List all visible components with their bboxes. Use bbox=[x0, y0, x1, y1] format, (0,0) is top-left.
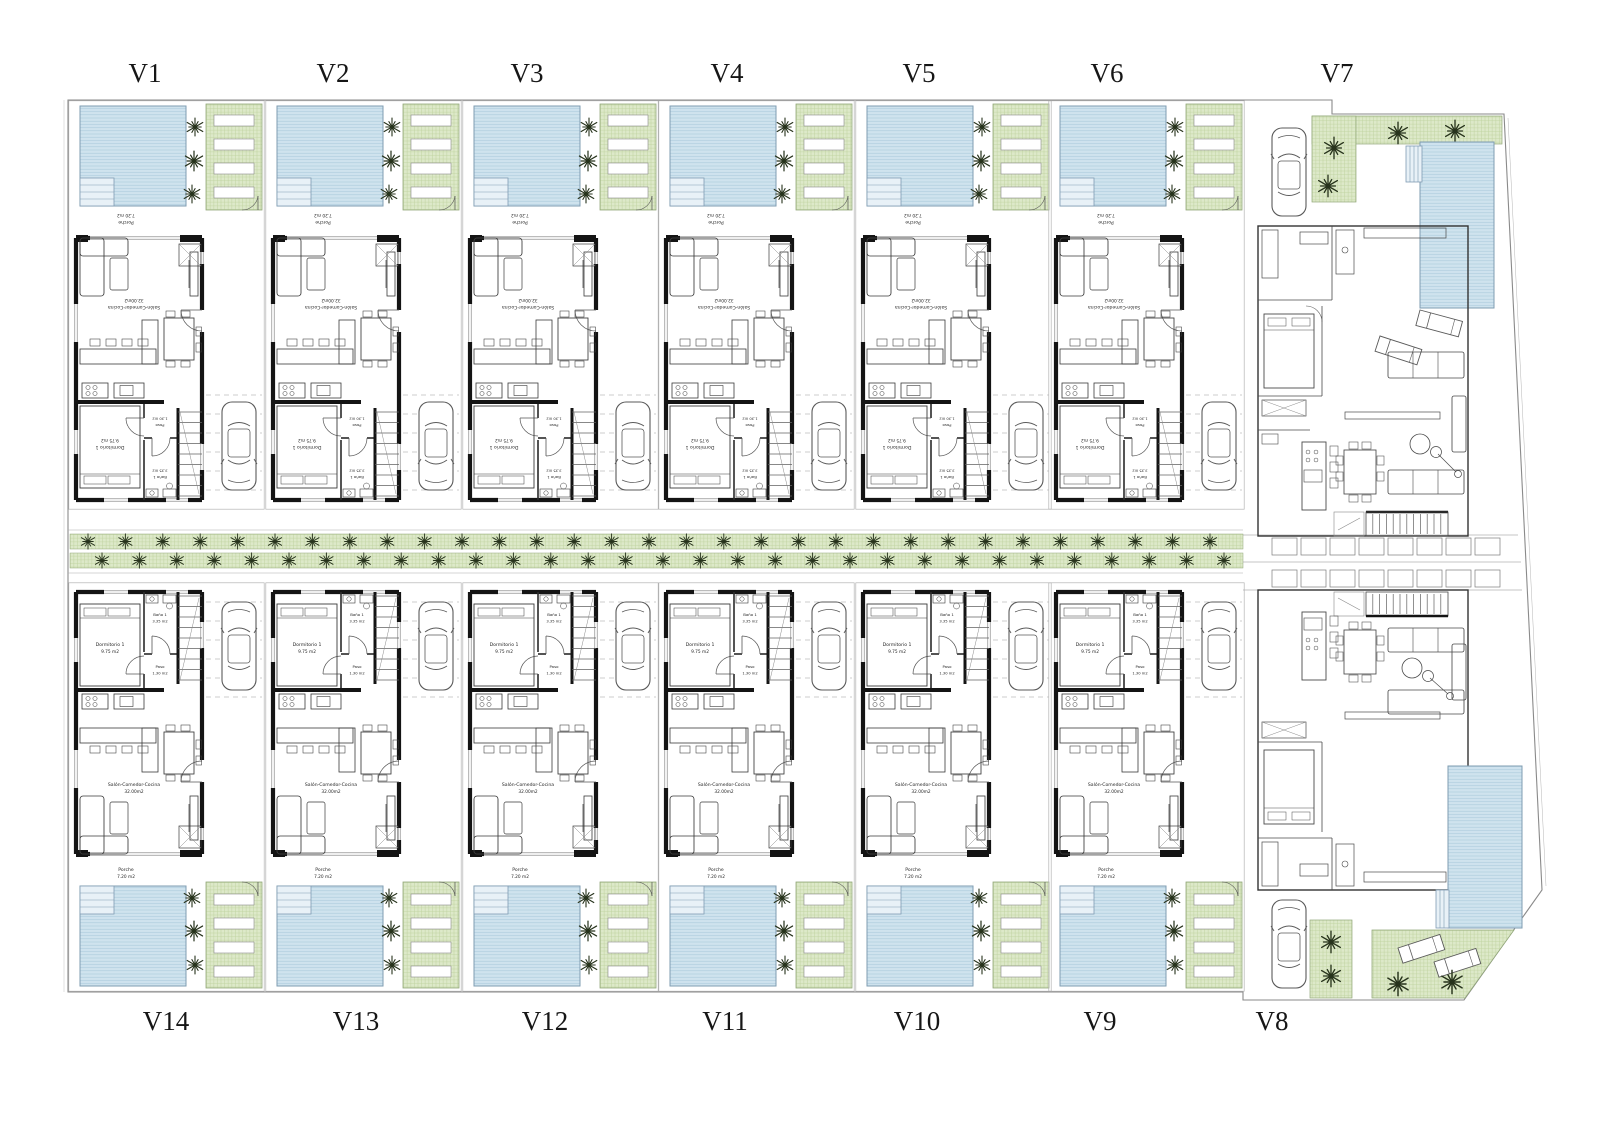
label-bano: Baño 1 bbox=[350, 475, 364, 480]
label-salon: Salón-Comedor-Cocina bbox=[108, 781, 160, 788]
label-paso: Paso bbox=[155, 423, 165, 428]
porch-post bbox=[770, 850, 792, 857]
label-porche: Porche bbox=[708, 867, 724, 873]
unit-number-label: V14 bbox=[143, 1006, 190, 1036]
porch-post bbox=[377, 850, 399, 857]
parked-car bbox=[1201, 402, 1237, 490]
label-dormitorio-area: 9.75 m2 bbox=[495, 437, 513, 443]
label-salon: Salón-Comedor-Cocina bbox=[502, 304, 554, 311]
label-salon: Salón-Comedor-Cocina bbox=[305, 304, 357, 311]
unit-number-label: V4 bbox=[711, 58, 744, 88]
label-porche-area: 7.20 m2 bbox=[117, 212, 135, 218]
garden-slat bbox=[1001, 894, 1041, 905]
garden-slat bbox=[411, 918, 451, 929]
garden-slat bbox=[214, 115, 254, 126]
label-dormitorio-area: 9.75 m2 bbox=[298, 649, 316, 655]
label-salon-area: 32.00m2 bbox=[124, 789, 143, 795]
label-bano-area: 3.35 m2 bbox=[1132, 620, 1147, 624]
parked-car bbox=[615, 402, 651, 490]
garden-slat bbox=[1194, 966, 1234, 977]
parked-car bbox=[1008, 602, 1044, 690]
parked-car bbox=[1271, 128, 1307, 216]
garden-slat bbox=[411, 894, 451, 905]
label-paso: Paso bbox=[942, 423, 952, 428]
label-paso: Paso bbox=[352, 423, 362, 428]
garden-slat bbox=[1194, 894, 1234, 905]
garden-slat bbox=[214, 942, 254, 953]
unit-number-label: V11 bbox=[702, 1006, 748, 1036]
garden-slat bbox=[1001, 966, 1041, 977]
garden-slat bbox=[1001, 139, 1041, 150]
garden-slat bbox=[804, 894, 844, 905]
parked-car bbox=[1008, 402, 1044, 490]
label-paso-area: 1.30 m2 bbox=[546, 672, 561, 676]
garden-slat bbox=[804, 163, 844, 174]
garden-slat bbox=[1001, 115, 1041, 126]
garden-slat bbox=[608, 894, 648, 905]
label-dormitorio-area: 9.75 m2 bbox=[298, 437, 316, 443]
garden-slat bbox=[411, 115, 451, 126]
label-salon-area: 32.00m2 bbox=[714, 297, 733, 303]
label-paso: Paso bbox=[745, 423, 755, 428]
label-bano: Baño 1 bbox=[547, 475, 561, 480]
porch-post bbox=[967, 235, 989, 242]
parked-car bbox=[221, 602, 257, 690]
label-porche-area: 7.20 m2 bbox=[511, 874, 529, 880]
label-bano-area: 3.35 m2 bbox=[152, 620, 167, 624]
label-bano: Baño 1 bbox=[153, 612, 167, 617]
label-dormitorio: Dormitorio 1 bbox=[292, 444, 321, 450]
garden-slat bbox=[1194, 918, 1234, 929]
swimming-pool bbox=[1448, 766, 1522, 928]
floor-plan-page: Dormitorio 19.75 m2Baño 13.35 m2Paso1.30… bbox=[0, 0, 1600, 1131]
label-porche-area: 7.20 m2 bbox=[314, 874, 332, 880]
label-paso-area: 1.30 m2 bbox=[546, 417, 561, 421]
label-paso-area: 1.30 m2 bbox=[742, 672, 757, 676]
unit-number-label: V13 bbox=[333, 1006, 380, 1036]
label-dormitorio-area: 9.75 m2 bbox=[691, 437, 709, 443]
garden-slat bbox=[411, 139, 451, 150]
garden-slat bbox=[411, 163, 451, 174]
label-paso: Paso bbox=[1136, 664, 1146, 669]
label-dormitorio: Dormitorio 1 bbox=[95, 444, 124, 450]
label-porche: Porche bbox=[512, 867, 528, 873]
label-paso: Paso bbox=[549, 423, 559, 428]
label-porche-area: 7.20 m2 bbox=[1097, 874, 1115, 880]
porch-post bbox=[967, 850, 989, 857]
label-porche: Porche bbox=[905, 219, 921, 225]
label-dormitorio-area: 9.75 m2 bbox=[101, 649, 119, 655]
garden-slat bbox=[804, 187, 844, 198]
label-bano: Baño 1 bbox=[153, 475, 167, 480]
label-salon: Salón-Comedor-Cocina bbox=[895, 781, 947, 788]
label-porche: Porche bbox=[118, 867, 134, 873]
garden-slat bbox=[1001, 942, 1041, 953]
label-bano: Baño 1 bbox=[940, 612, 954, 617]
label-dormitorio: Dormitorio 1 bbox=[96, 642, 125, 648]
parked-car bbox=[811, 402, 847, 490]
label-dormitorio: Dormitorio 1 bbox=[1076, 642, 1105, 648]
label-salon: Salón-Comedor-Cocina bbox=[1088, 781, 1140, 788]
garden-slat bbox=[608, 942, 648, 953]
label-salon: Salón-Comedor-Cocina bbox=[305, 781, 357, 788]
garden-slat bbox=[1194, 139, 1234, 150]
label-bano-area: 3.35 m2 bbox=[939, 469, 954, 473]
parked-car bbox=[1201, 602, 1237, 690]
label-salon-area: 32.00m2 bbox=[714, 789, 733, 795]
label-paso-area: 1.30 m2 bbox=[742, 417, 757, 421]
unit-number-label: V9 bbox=[1084, 1006, 1117, 1036]
label-bano: Baño 1 bbox=[350, 612, 364, 617]
label-paso-area: 1.30 m2 bbox=[152, 417, 167, 421]
porch-post bbox=[180, 850, 202, 857]
label-salon-area: 32.00m2 bbox=[911, 789, 930, 795]
label-salon: Salón-Comedor-Cocina bbox=[108, 304, 160, 311]
garden-slat bbox=[214, 918, 254, 929]
garden-slat bbox=[411, 942, 451, 953]
unit-number-label: V8 bbox=[1256, 1006, 1289, 1036]
garden-slat bbox=[804, 918, 844, 929]
garden-slat bbox=[804, 942, 844, 953]
porch-post bbox=[574, 850, 596, 857]
parked-car bbox=[615, 602, 651, 690]
label-dormitorio: Dormitorio 1 bbox=[1075, 444, 1104, 450]
label-porche-area: 7.20 m2 bbox=[707, 874, 725, 880]
label-bano-area: 3.35 m2 bbox=[152, 469, 167, 473]
label-porche: Porche bbox=[905, 867, 921, 873]
label-paso: Paso bbox=[1135, 423, 1145, 428]
garden-slat bbox=[608, 966, 648, 977]
label-bano-area: 3.35 m2 bbox=[349, 620, 364, 624]
label-dormitorio-area: 9.75 m2 bbox=[1081, 437, 1099, 443]
label-porche-area: 7.20 m2 bbox=[904, 212, 922, 218]
label-porche-area: 7.20 m2 bbox=[314, 212, 332, 218]
site-boundary bbox=[68, 100, 1542, 1000]
label-dormitorio: Dormitorio 1 bbox=[489, 444, 518, 450]
label-porche: Porche bbox=[118, 219, 134, 225]
label-paso-area: 1.30 m2 bbox=[1132, 417, 1147, 421]
label-bano-area: 3.35 m2 bbox=[349, 469, 364, 473]
label-bano: Baño 1 bbox=[940, 475, 954, 480]
label-salon-area: 32.00m2 bbox=[518, 297, 537, 303]
garden-slat bbox=[804, 966, 844, 977]
site-plan-drawing: Dormitorio 19.75 m2Baño 13.35 m2Paso1.30… bbox=[0, 0, 1600, 1131]
label-salon: Salón-Comedor-Cocina bbox=[895, 304, 947, 311]
garden-slat bbox=[411, 966, 451, 977]
label-dormitorio-area: 9.75 m2 bbox=[495, 649, 513, 655]
label-paso: Paso bbox=[353, 664, 363, 669]
label-bano-area: 3.35 m2 bbox=[546, 469, 561, 473]
garden-slat bbox=[1001, 163, 1041, 174]
label-porche-area: 7.20 m2 bbox=[707, 212, 725, 218]
label-salon-area: 32.00m2 bbox=[911, 297, 930, 303]
porch-post bbox=[377, 235, 399, 242]
parked-car bbox=[418, 602, 454, 690]
label-porche: Porche bbox=[708, 219, 724, 225]
garden-slat bbox=[804, 115, 844, 126]
label-bano: Baño 1 bbox=[1133, 612, 1147, 617]
label-paso-area: 1.30 m2 bbox=[939, 417, 954, 421]
label-paso-area: 1.30 m2 bbox=[1132, 672, 1147, 676]
label-dormitorio: Dormitorio 1 bbox=[293, 642, 322, 648]
label-paso-area: 1.30 m2 bbox=[152, 672, 167, 676]
unit-number-label: V12 bbox=[522, 1006, 569, 1036]
garden-slat bbox=[608, 187, 648, 198]
label-porche-area: 7.20 m2 bbox=[117, 874, 135, 880]
garden-slat bbox=[608, 163, 648, 174]
label-salon-area: 32.00m2 bbox=[321, 297, 340, 303]
label-porche: Porche bbox=[315, 867, 331, 873]
label-salon-area: 32.00m2 bbox=[124, 297, 143, 303]
garden-slat bbox=[804, 139, 844, 150]
label-bano-area: 3.35 m2 bbox=[1132, 469, 1147, 473]
unit-number-label: V3 bbox=[511, 58, 544, 88]
label-porche: Porche bbox=[1098, 219, 1114, 225]
unit-number-label: V7 bbox=[1321, 58, 1354, 88]
label-salon: Salón-Comedor-Cocina bbox=[698, 304, 750, 311]
label-dormitorio: Dormitorio 1 bbox=[883, 642, 912, 648]
label-bano: Baño 1 bbox=[743, 475, 757, 480]
garden-slat bbox=[214, 894, 254, 905]
unit-number-label: V10 bbox=[894, 1006, 941, 1036]
label-porche-area: 7.20 m2 bbox=[1097, 212, 1115, 218]
porch-post bbox=[770, 235, 792, 242]
pool-steps bbox=[1436, 890, 1449, 928]
label-dormitorio: Dormitorio 1 bbox=[882, 444, 911, 450]
garden-slat bbox=[214, 966, 254, 977]
label-paso: Paso bbox=[746, 664, 756, 669]
garden-slat bbox=[1001, 918, 1041, 929]
label-porche: Porche bbox=[315, 219, 331, 225]
label-paso-area: 1.30 m2 bbox=[349, 417, 364, 421]
label-bano-area: 3.35 m2 bbox=[742, 620, 757, 624]
parked-car bbox=[221, 402, 257, 490]
label-salon: Salón-Comedor-Cocina bbox=[698, 781, 750, 788]
label-bano: Baño 1 bbox=[743, 612, 757, 617]
label-dormitorio: Dormitorio 1 bbox=[686, 642, 715, 648]
label-dormitorio-area: 9.75 m2 bbox=[101, 437, 119, 443]
garden-slat bbox=[1194, 187, 1234, 198]
label-porche-area: 7.20 m2 bbox=[904, 874, 922, 880]
unit-number-label: V5 bbox=[903, 58, 936, 88]
garden-slat bbox=[1194, 942, 1234, 953]
label-paso: Paso bbox=[550, 664, 560, 669]
label-dormitorio-area: 9.75 m2 bbox=[888, 649, 906, 655]
garden-slat bbox=[1001, 187, 1041, 198]
label-dormitorio: Dormitorio 1 bbox=[685, 444, 714, 450]
label-bano: Baño 1 bbox=[1133, 475, 1147, 480]
label-paso: Paso bbox=[156, 664, 166, 669]
street-green-band bbox=[70, 534, 1243, 549]
swimming-pool bbox=[1420, 142, 1494, 308]
label-porche-area: 7.20 m2 bbox=[511, 212, 529, 218]
label-paso-area: 1.30 m2 bbox=[939, 672, 954, 676]
label-salon: Salón-Comedor-Cocina bbox=[1088, 304, 1140, 311]
label-dormitorio-area: 9.75 m2 bbox=[691, 649, 709, 655]
label-salon-area: 32.00m2 bbox=[321, 789, 340, 795]
label-dormitorio-area: 9.75 m2 bbox=[888, 437, 906, 443]
garden-slat bbox=[608, 115, 648, 126]
label-dormitorio-area: 9.75 m2 bbox=[1081, 649, 1099, 655]
garden-slat bbox=[214, 139, 254, 150]
parked-car bbox=[811, 602, 847, 690]
label-bano-area: 3.35 m2 bbox=[939, 620, 954, 624]
garden-slat bbox=[411, 187, 451, 198]
parked-car bbox=[418, 402, 454, 490]
porch-post bbox=[1160, 850, 1182, 857]
garden-slat bbox=[608, 918, 648, 929]
garden-slat bbox=[608, 139, 648, 150]
garden-slat bbox=[1194, 115, 1234, 126]
label-salon-area: 32.00m2 bbox=[518, 789, 537, 795]
garden-slat bbox=[214, 163, 254, 174]
porch-post bbox=[574, 235, 596, 242]
label-paso: Paso bbox=[943, 664, 953, 669]
porch-post bbox=[1160, 235, 1182, 242]
parked-car bbox=[1271, 900, 1307, 988]
label-salon-area: 32.00m2 bbox=[1104, 297, 1123, 303]
label-paso-area: 1.30 m2 bbox=[349, 672, 364, 676]
label-bano-area: 3.35 m2 bbox=[742, 469, 757, 473]
label-salon-area: 32.00m2 bbox=[1104, 789, 1123, 795]
label-dormitorio: Dormitorio 1 bbox=[490, 642, 519, 648]
porch-post bbox=[180, 235, 202, 242]
label-salon: Salón-Comedor-Cocina bbox=[502, 781, 554, 788]
garden-slat bbox=[214, 187, 254, 198]
unit-number-label: V2 bbox=[317, 58, 350, 88]
unit-number-label: V6 bbox=[1091, 58, 1124, 88]
label-porche: Porche bbox=[1098, 867, 1114, 873]
garden-slat bbox=[1194, 163, 1234, 174]
label-bano-area: 3.35 m2 bbox=[546, 620, 561, 624]
label-bano: Baño 1 bbox=[547, 612, 561, 617]
unit-number-label: V1 bbox=[129, 58, 162, 88]
label-porche: Porche bbox=[512, 219, 528, 225]
